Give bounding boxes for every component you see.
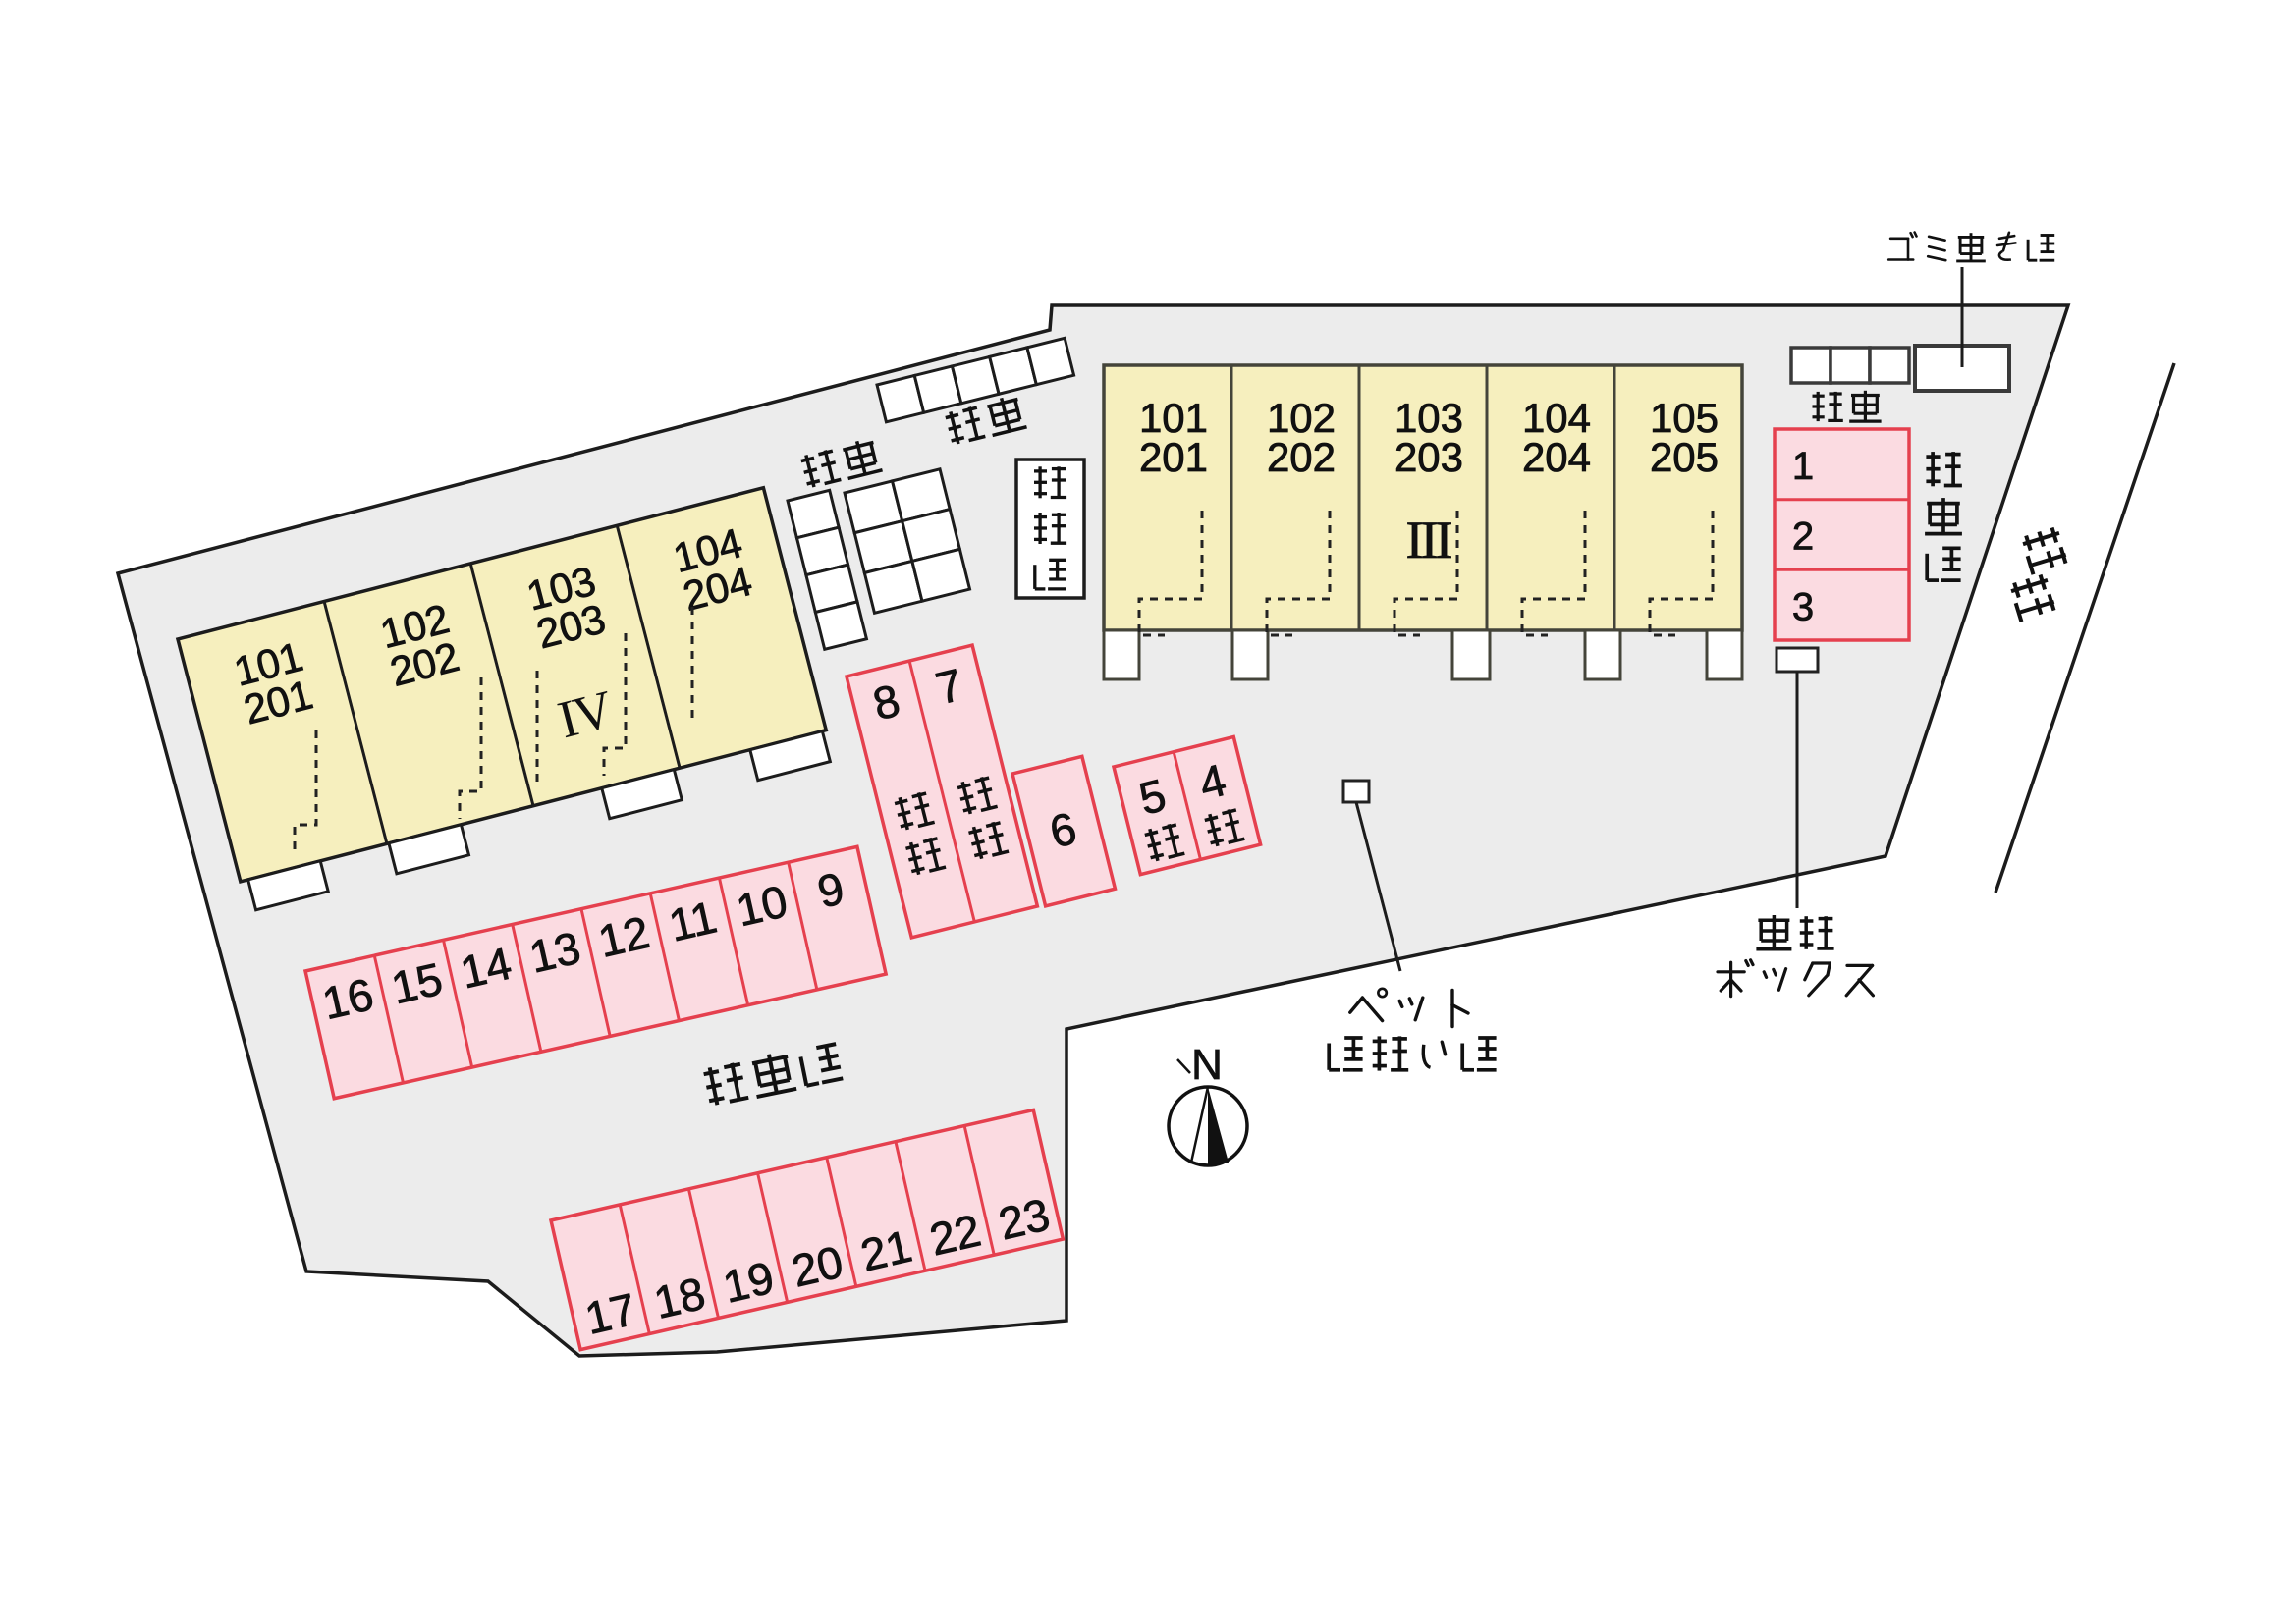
svg-text:3: 3 bbox=[1792, 585, 1814, 628]
svg-text:203: 203 bbox=[1394, 434, 1463, 480]
svg-text:204: 204 bbox=[1522, 434, 1591, 480]
svg-text:201: 201 bbox=[1139, 434, 1208, 480]
svg-text:N: N bbox=[1191, 1041, 1223, 1089]
svg-text:III: III bbox=[1406, 511, 1452, 569]
svg-text:2: 2 bbox=[1792, 515, 1814, 559]
svg-text:205: 205 bbox=[1650, 434, 1719, 480]
svg-text:1: 1 bbox=[1792, 445, 1814, 488]
svg-text:202: 202 bbox=[1267, 434, 1336, 480]
